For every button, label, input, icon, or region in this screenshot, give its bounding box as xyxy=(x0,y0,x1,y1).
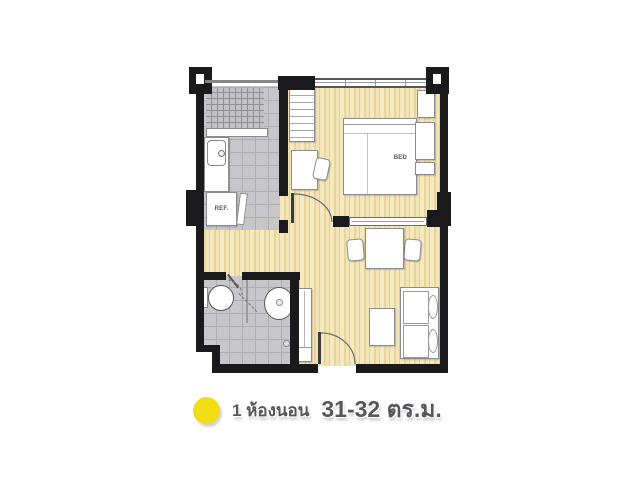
bathroom-wall-top-left xyxy=(196,272,226,280)
notch-outside-area xyxy=(198,352,212,374)
bedroom-door-leaf xyxy=(291,193,294,223)
column-top-left-core xyxy=(196,74,204,84)
divider-stub-left xyxy=(279,220,288,233)
bathroom-wall-right xyxy=(290,272,299,364)
toilet-bowl xyxy=(208,285,234,311)
bed-label: BED xyxy=(394,155,407,161)
dining-chair-left xyxy=(346,238,365,261)
window-tick-3 xyxy=(405,80,406,86)
window-tick-1 xyxy=(345,80,346,86)
caption-area-text: 31-32 ตร.ม. xyxy=(321,392,441,428)
bed-blanket-line xyxy=(344,133,416,134)
caption-bedrooms-text: 1 ห้องนอน xyxy=(232,397,309,424)
washbasin-drain xyxy=(276,299,283,306)
kitchen-utility-hatch xyxy=(206,88,264,128)
dining-table xyxy=(365,228,404,269)
sofa-pillow-top xyxy=(428,295,438,319)
window-mullion-line xyxy=(315,82,426,83)
floor-plan-page: REF. BED xyxy=(0,0,640,480)
nightstand-upper xyxy=(415,122,435,160)
wardrobe xyxy=(289,88,315,142)
refrigerator: REF. xyxy=(206,192,237,226)
faucet-icon xyxy=(218,150,225,157)
hall-cabinet xyxy=(298,288,312,362)
kitchen-top-ledge xyxy=(205,80,280,83)
caption: 1 ห้องนอน 31-32 ตร.ม. xyxy=(193,392,442,428)
window-tick-2 xyxy=(375,80,376,86)
dining-chair-right xyxy=(403,238,422,261)
coffee-table xyxy=(369,308,395,346)
bedroom-window xyxy=(315,78,426,88)
wall-left xyxy=(196,88,204,348)
sofa-cushion-bottom xyxy=(403,325,429,358)
sofa-cushion-top xyxy=(403,291,429,324)
sliding-door xyxy=(349,217,427,226)
bed: BED xyxy=(343,118,417,195)
wall-kitchen-bedroom xyxy=(279,84,288,196)
entrance-door-leaf xyxy=(318,332,321,364)
wall-bottom-left xyxy=(212,364,318,373)
sofa-pillow-bottom xyxy=(428,329,438,353)
column-left-bump xyxy=(186,190,196,226)
floor-drain xyxy=(283,340,290,347)
wall-bottom-right xyxy=(356,364,448,373)
sofa xyxy=(400,287,439,359)
divider-segment-right xyxy=(427,210,448,227)
bed-fold-line xyxy=(367,134,368,194)
hall-cabinet-shelf-line xyxy=(299,347,311,348)
divider-segment-mid xyxy=(333,216,349,227)
refrigerator-label: REF. xyxy=(215,206,229,212)
wall-right xyxy=(440,94,448,373)
bed-headboard xyxy=(344,119,416,125)
bullet-dot-icon xyxy=(193,397,220,424)
hall-cabinet-divider xyxy=(304,291,305,347)
nightstand-lower xyxy=(415,162,435,175)
sliding-door-track-line xyxy=(352,221,424,222)
kitchen-shelf xyxy=(206,128,268,137)
bedroom-shelf xyxy=(417,90,435,118)
column-top-right-core xyxy=(433,74,441,84)
